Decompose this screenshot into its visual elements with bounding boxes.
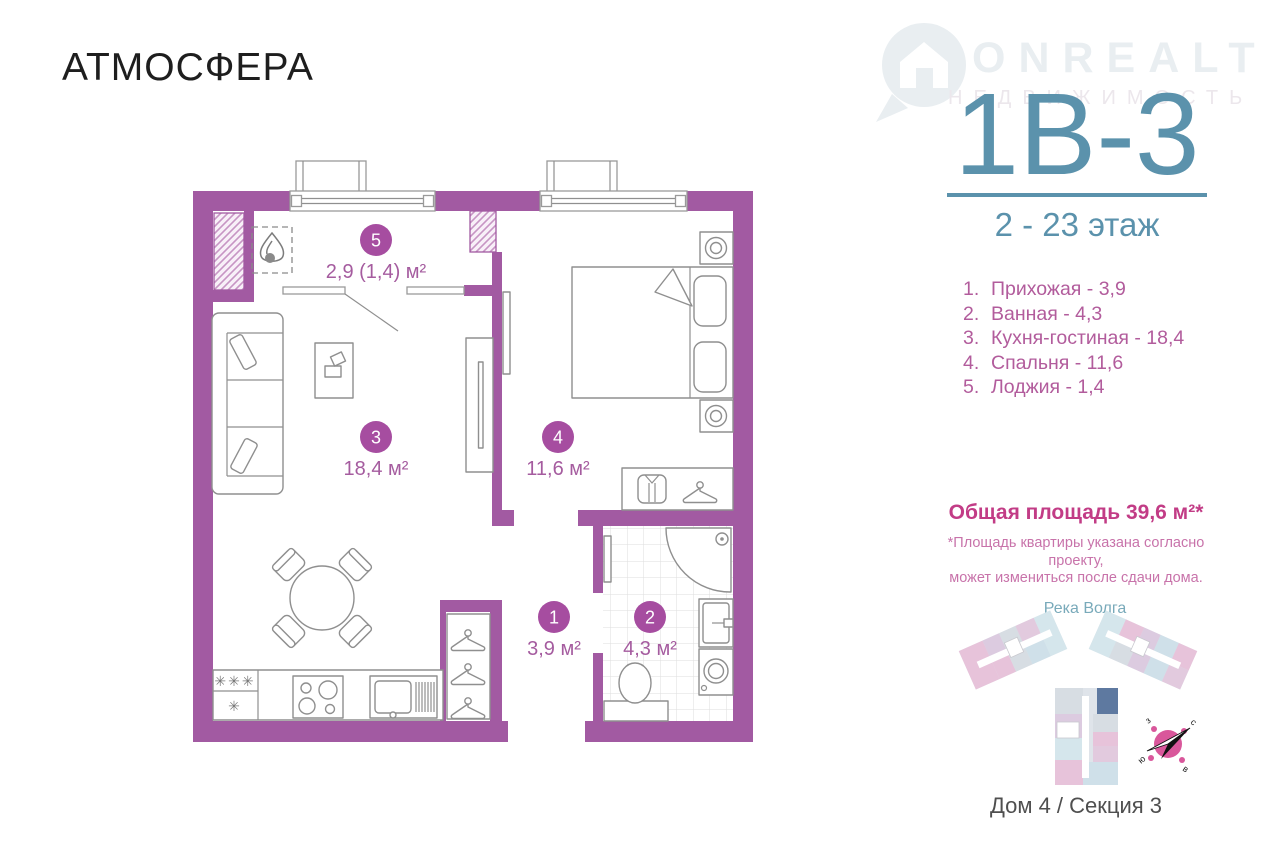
room-2-area: 4,3 м² [623, 638, 677, 660]
legend-item-number: 3. [963, 326, 991, 351]
unit-floors-range: 2 - 23 этаж [947, 206, 1207, 244]
legend-item-label: Кухня-гостиная - 18,4 [991, 326, 1184, 351]
legend-item-2: 2. Ванная - 4,3 [963, 302, 1184, 327]
room-3-badge: 3 [360, 421, 392, 453]
dining-table [271, 547, 372, 648]
shaft-hatch-left [214, 213, 244, 290]
nightstand-top [700, 232, 733, 264]
legend-item-number: 1. [963, 277, 991, 302]
room-5-badge: 5 [360, 224, 392, 256]
tv-unit [466, 338, 493, 472]
room-2-badge: 2 [634, 601, 666, 633]
coffee-table [315, 343, 353, 398]
svg-text:5: 5 [371, 231, 381, 251]
site-caption: Дом 4 / Секция 3 [940, 793, 1212, 819]
upper-balcony-outlines [296, 161, 617, 192]
washing-machine [699, 649, 733, 695]
site-plan: Река Волга [950, 592, 1212, 820]
legend-item-label: Лоджия - 1,4 [991, 375, 1105, 400]
total-area-note-line1: *Площадь квартиры указана согласно проек… [920, 535, 1232, 570]
legend-item-label: Спальня - 11,6 [991, 351, 1123, 376]
room-1-area: 3,9 м² [527, 638, 581, 660]
legend-item-1: 1. Прихожая - 3,9 [963, 277, 1184, 302]
compass-rose: з с ю в [1136, 715, 1199, 774]
svg-text:1: 1 [549, 608, 559, 628]
bed [572, 267, 733, 398]
legend-item-number: 4. [963, 351, 991, 376]
site-building-wing-right [1089, 610, 1197, 689]
legend-item-3: 3. Кухня-гостиная - 18,4 [963, 326, 1184, 351]
room-legend: 1. Прихожая - 3,9 2. Ванная - 4,3 3. Кух… [963, 277, 1184, 400]
bathroom-sink [699, 599, 733, 647]
unit-code: 1В-3 [947, 76, 1207, 192]
flyer-canvas: АТМОСФЕРА ONREALT НЕДВИЖИМОСТЬ 1В-3 2 - … [0, 0, 1280, 854]
site-building-wing-bottom [1055, 688, 1118, 785]
legend-item-label: Прихожая - 3,9 [991, 277, 1126, 302]
legend-item-number: 2. [963, 302, 991, 327]
bedroom-wardrobe-strip [503, 292, 510, 374]
room-4-area: 11,6 м² [526, 458, 590, 480]
total-area-note: *Площадь квартиры указана согласно проек… [920, 535, 1232, 588]
compass-west-label: з [1143, 715, 1152, 726]
total-area-title: Общая площадь 39,6 м²* [920, 501, 1232, 525]
room-1-badge: 1 [538, 601, 570, 633]
fridge-mark: ✳ [228, 698, 242, 714]
site-highlighted-unit [1097, 688, 1118, 714]
bedroom-closet [622, 468, 733, 510]
room-3-area: 18,4 м² [344, 458, 409, 480]
bathroom-mirror [604, 536, 611, 582]
svg-text:2: 2 [645, 608, 655, 628]
gas-boiler-icon [252, 227, 292, 273]
legend-item-number: 5. [963, 375, 991, 400]
floor-plan: ✳✳✳ ✳ [185, 148, 765, 748]
developer-logo: АТМОСФЕРА [62, 46, 314, 90]
hob-icon [293, 676, 343, 718]
compass-east-label: в [1181, 763, 1191, 774]
shaft-hatch-center [470, 211, 496, 252]
legend-item-4: 4. Спальня - 11,6 [963, 351, 1184, 376]
nightstand-bottom [700, 400, 733, 432]
freezer-marks: ✳✳✳ [214, 673, 255, 689]
site-building-wing-left [959, 610, 1067, 689]
svg-text:3: 3 [371, 428, 381, 448]
kitchen-counter: ✳✳✳ ✳ [213, 670, 443, 720]
svg-text:4: 4 [553, 428, 563, 448]
compass-north-label: с [1189, 717, 1199, 728]
balcony-door-swing [345, 294, 398, 331]
unit-rule-divider [947, 193, 1207, 197]
room-4-badge: 4 [542, 421, 574, 453]
kitchen-sink-icon [370, 676, 437, 718]
legend-item-label: Ванная - 4,3 [991, 302, 1102, 327]
total-area-note-line2: может измениться после сдачи дома. [920, 570, 1232, 588]
legend-item-5: 5. Лоджия - 1,4 [963, 375, 1184, 400]
hall-closet [447, 614, 490, 719]
total-area-block: Общая площадь 39,6 м²* *Площадь квартиры… [920, 501, 1232, 588]
loggia-glazing [283, 287, 464, 331]
sofa [212, 313, 283, 494]
compass-south-label: ю [1136, 753, 1148, 765]
room-5-area: 2,9 (1,4) м² [326, 261, 427, 283]
